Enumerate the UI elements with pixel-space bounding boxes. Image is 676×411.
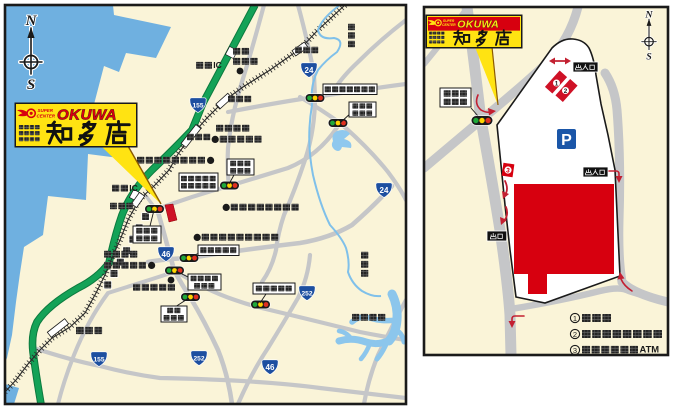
svg-text:ATM: ATM [640, 344, 660, 355]
svg-text:N: N [25, 13, 38, 29]
svg-text:3: 3 [573, 346, 577, 355]
svg-text:SUPER: SUPER [38, 108, 54, 113]
svg-text:155: 155 [93, 356, 104, 363]
svg-text:OKUWA: OKUWA [457, 19, 499, 31]
svg-text:155: 155 [192, 102, 203, 109]
svg-text:P: P [561, 132, 572, 149]
svg-text:24: 24 [305, 66, 314, 75]
svg-text:252: 252 [301, 290, 312, 297]
svg-text:N: N [644, 9, 653, 20]
svg-text:1: 1 [555, 80, 559, 87]
svg-text:1: 1 [573, 314, 577, 323]
svg-text:S: S [27, 77, 35, 93]
svg-text:IC: IC [129, 183, 138, 193]
svg-text:24: 24 [380, 186, 389, 195]
svg-text:OKUWA: OKUWA [57, 107, 117, 124]
svg-text:S: S [646, 52, 652, 63]
svg-text:46: 46 [266, 363, 275, 372]
svg-text:CENTER: CENTER [442, 23, 456, 27]
svg-text:IC: IC [213, 60, 222, 70]
svg-text:2: 2 [573, 330, 577, 339]
svg-text:46: 46 [162, 250, 171, 259]
svg-text:252: 252 [193, 355, 204, 362]
svg-text:2: 2 [564, 88, 568, 95]
svg-text:CENTER: CENTER [37, 114, 56, 119]
